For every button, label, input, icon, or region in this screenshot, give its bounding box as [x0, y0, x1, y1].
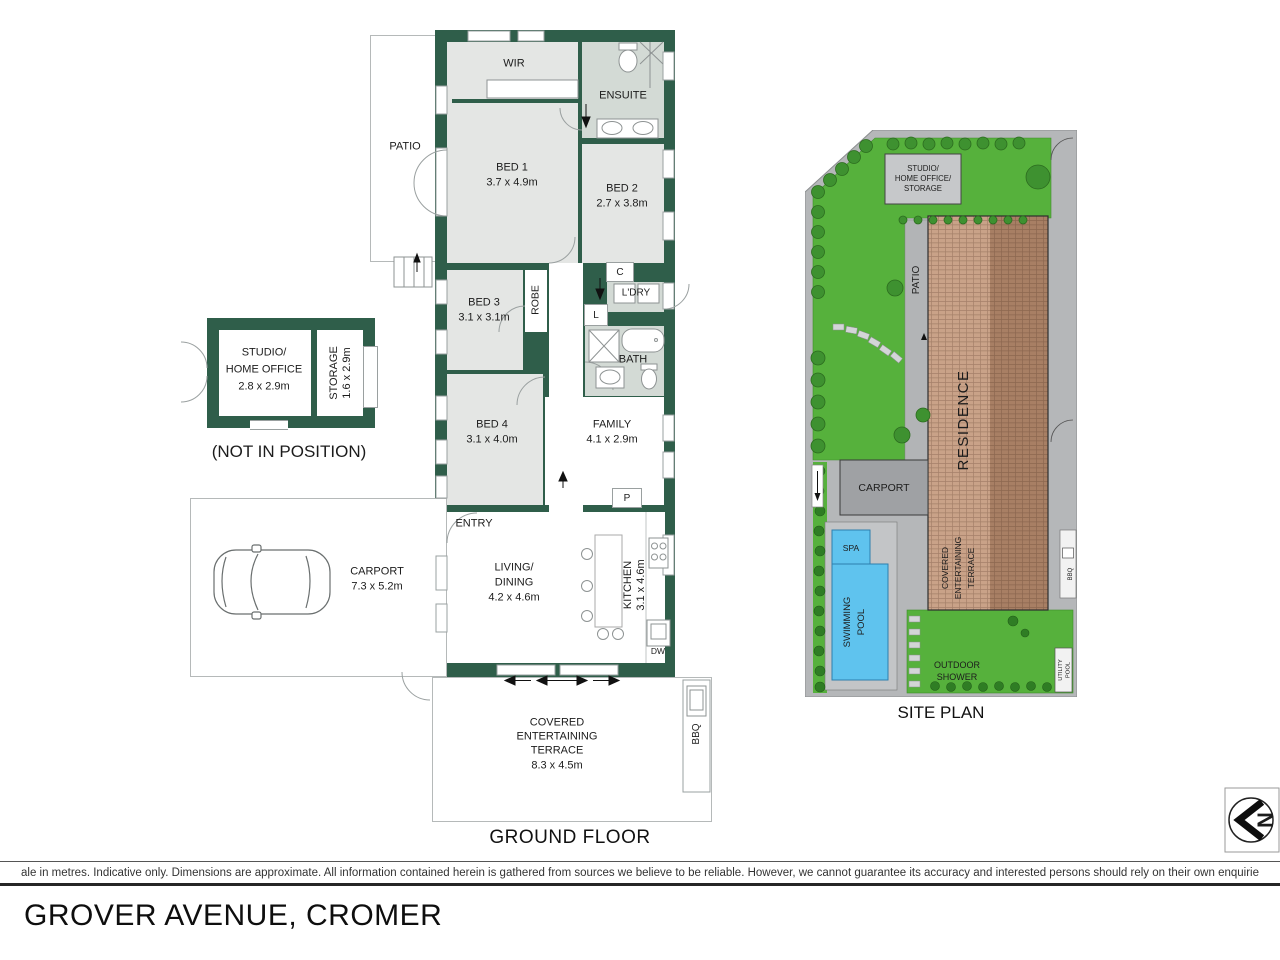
disclaimer-text: ale in metres. Indicative only. Dimensio…	[21, 867, 1259, 879]
site-carport-label: CARPORT	[858, 482, 910, 494]
site-plan-title: SITE PLAN	[898, 703, 985, 723]
site-shower-label1: OUTDOOR	[934, 660, 980, 670]
compass-letter: N	[1253, 812, 1278, 828]
storage-label-block: STORAGE 1.6 x 2.9m	[328, 346, 354, 400]
terrace-label3: TERRACE	[531, 745, 584, 758]
kitchen-dims: 3.1 x 4.6m	[635, 559, 648, 610]
ensuite-label: ENSUITE	[599, 90, 647, 103]
address-title: GROVER AVENUE, CROMER	[24, 899, 442, 933]
site-pool-label2: POOL	[856, 609, 867, 635]
patio-label: PATIO	[389, 141, 420, 154]
living-dims: 4.2 x 4.6m	[488, 592, 539, 605]
wir-label: WIR	[503, 58, 524, 71]
site-patio-label: PATIO	[911, 266, 922, 295]
bbq-label: BBQ	[691, 723, 703, 744]
robe-label: ROBE	[530, 285, 543, 315]
floorplan-linework	[0, 0, 1280, 960]
storage-dims: 1.6 x 2.9m	[341, 346, 354, 400]
studio-dims: 2.8 x 2.9m	[238, 381, 289, 394]
bed2-dims: 2.7 x 3.8m	[596, 198, 647, 211]
terrace-label2: ENTERTAINING	[517, 731, 598, 744]
bed1-label: BED 1	[496, 162, 528, 175]
terrace-dims: 8.3 x 4.5m	[531, 760, 582, 773]
site-studio-label3: STORAGE	[904, 184, 942, 193]
carport-dims: 7.3 x 5.2m	[351, 581, 402, 594]
site-spa-label: SPA	[843, 543, 860, 553]
floorplan-page: C L P	[0, 0, 1280, 960]
site-plan: STUDIO/ HOME OFFICE/ STORAGE PATIO RESID…	[805, 130, 1077, 697]
disclaimer-bar: ale in metres. Indicative only. Dimensio…	[0, 861, 1280, 886]
family-dims: 4.1 x 2.9m	[586, 434, 637, 447]
site-residence-label: RESIDENCE	[955, 369, 972, 470]
ground-floor-title: GROUND FLOOR	[489, 827, 650, 849]
site-pool-label1: SWIMMING	[842, 597, 853, 648]
site-terrace-label1: COVERED	[940, 547, 950, 589]
storage-label: STORAGE	[328, 346, 341, 400]
car	[214, 545, 330, 619]
not-in-position-label: (NOT IN POSITION)	[212, 442, 367, 462]
kitchen-label: KITCHEN	[622, 559, 635, 610]
site-utility-label2: POOL	[1066, 661, 1072, 678]
site-studio-label1: STUDIO/	[907, 164, 939, 173]
site-terrace-label3: TERRACE	[966, 547, 976, 588]
north-compass: N	[1224, 787, 1280, 853]
ldry-label: L'DRY	[622, 287, 650, 299]
living-label2: DINING	[495, 577, 534, 590]
site-terrace-label2: ENTERTAINING	[953, 537, 963, 600]
bed3-dims: 3.1 x 3.1m	[458, 312, 509, 325]
bed3-label: BED 3	[468, 297, 500, 310]
bed4-label: BED 4	[476, 419, 508, 432]
living-label1: LIVING/	[494, 562, 533, 575]
bed2-label: BED 2	[606, 183, 638, 196]
family-label: FAMILY	[593, 419, 631, 432]
site-bbq-bench	[1060, 530, 1076, 598]
site-lawn-bottom	[907, 610, 1073, 693]
entry-label: ENTRY	[455, 518, 492, 531]
kitchen-label-block: KITCHEN 3.1 x 4.6m	[622, 559, 648, 610]
site-studio-label2: HOME OFFICE/	[895, 174, 952, 183]
bath-label: BATH	[619, 354, 648, 367]
carport-label: CARPORT	[350, 566, 404, 579]
studio-label2: HOME OFFICE	[226, 364, 302, 377]
site-bbq-unit	[1063, 548, 1074, 558]
bed1-dims: 3.7 x 4.9m	[486, 177, 537, 190]
bed4-dims: 3.1 x 4.0m	[466, 434, 517, 447]
terrace-label1: COVERED	[530, 717, 584, 730]
studio-label1: STUDIO/	[242, 347, 287, 360]
site-bbq-label: BBQ	[1068, 567, 1074, 580]
dw-label: DW	[651, 647, 665, 657]
site-shower-label2: SHOWER	[937, 672, 978, 682]
site-utility-label1: UTILITY	[1058, 659, 1064, 681]
